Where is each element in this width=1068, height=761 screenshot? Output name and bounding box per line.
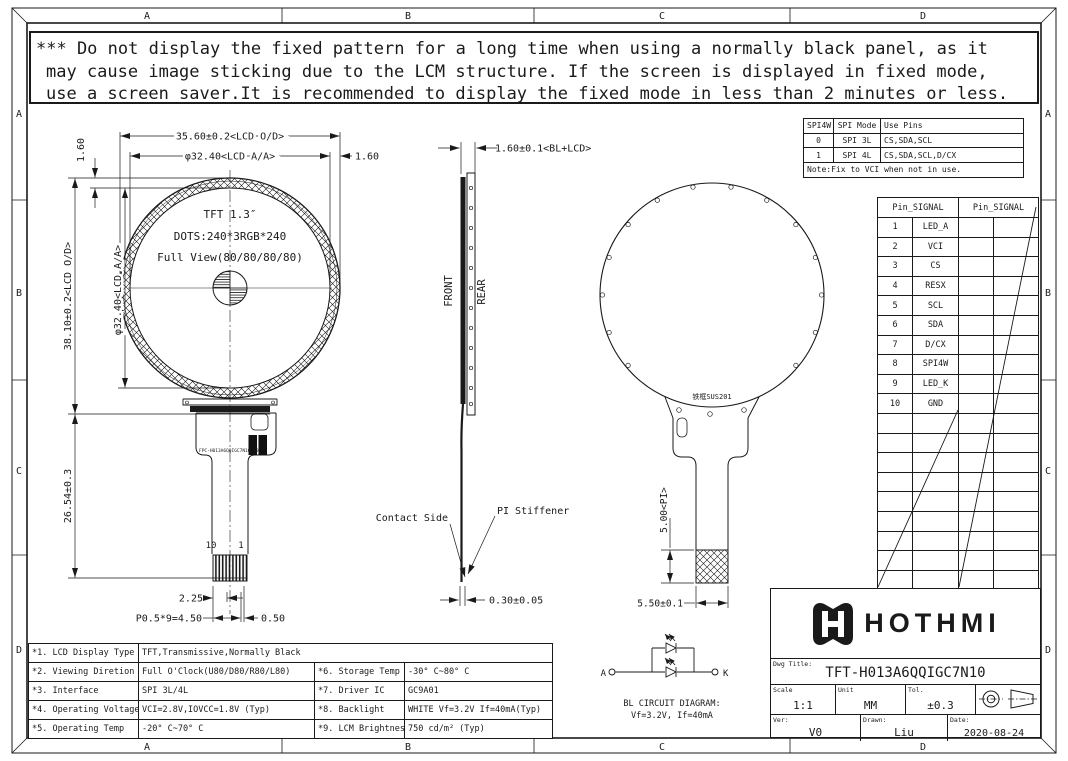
pin-no: 10 bbox=[878, 394, 913, 414]
table-row: Pin_SIGNAL Pin_SIGNAL bbox=[878, 198, 1039, 218]
pin-no: 1 bbox=[878, 218, 913, 238]
pin-signal: SPI4W bbox=[913, 355, 959, 375]
table-row: 8SPI4W bbox=[878, 355, 1039, 375]
pin-no: 3 bbox=[878, 257, 913, 277]
spec-label: *8. Backlight bbox=[315, 701, 405, 720]
spec-label: *6. Storage Temp bbox=[315, 663, 405, 682]
drawn-value: Liu bbox=[861, 726, 947, 739]
scale-unit-tol-row: Scale 1:1 Unit MM Tol. ±0.3 bbox=[771, 685, 1040, 715]
brand-name: HOTHMI bbox=[864, 608, 1000, 639]
pin-signal: LED_K bbox=[913, 374, 959, 394]
table-row: 6SDA bbox=[878, 315, 1039, 335]
pin-no: 4 bbox=[878, 276, 913, 296]
zone-top-d: D bbox=[920, 11, 926, 22]
spi-mode-table: SPI4W SPI Mode Use Pins 0 SPI 3L CS,SDA,… bbox=[803, 118, 1024, 178]
zone-right-a: A bbox=[1045, 109, 1051, 120]
drawn-cell: Drawn: Liu bbox=[861, 715, 948, 741]
spec-value: TFT,Transmissive,Normally Black bbox=[139, 644, 553, 663]
scale-label: Scale bbox=[773, 686, 793, 694]
title-block: HOTHMI Dwg Title: TFT-H013A6QQIGC7N10 Sc… bbox=[770, 588, 1041, 738]
unit-label: Unit bbox=[838, 686, 854, 694]
table-row: Note:Fix to VCI when not in use. bbox=[804, 163, 1024, 178]
table-row bbox=[878, 453, 1039, 473]
zone-left-b: B bbox=[16, 288, 22, 299]
table-row bbox=[878, 413, 1039, 433]
drawn-label: Drawn: bbox=[863, 716, 886, 724]
hothmi-logo-icon bbox=[810, 598, 856, 650]
scale-value: 1:1 bbox=[771, 699, 835, 712]
zone-right-c: C bbox=[1045, 466, 1051, 477]
spec-label: *9. LCM Brightness bbox=[315, 720, 405, 739]
pin-signal: SCL bbox=[913, 296, 959, 316]
unit-cell: Unit MM bbox=[836, 685, 906, 714]
pin-header-right: Pin_SIGNAL bbox=[959, 198, 1039, 218]
pin-signal: VCI bbox=[913, 237, 959, 257]
spi-cell: CS,SDA,SCL bbox=[881, 133, 1024, 148]
bl-circuit-title: BL CIRCUIT DIAGRAM: bbox=[623, 699, 720, 709]
scale-cell: Scale 1:1 bbox=[771, 685, 836, 714]
tol-cell: Tol. ±0.3 bbox=[906, 685, 976, 714]
table-row: 7D/CX bbox=[878, 335, 1039, 355]
date-label: Date: bbox=[950, 716, 970, 724]
warning-line-1: *** Do not display the fixed pattern for… bbox=[36, 39, 988, 59]
front-view-dim-text: 35.60±0.2<LCD O/D> φ32.40<LCD A/A> 1.60 … bbox=[63, 132, 379, 625]
dim-offset: 2.25 bbox=[179, 594, 203, 605]
zone-bottom-d: D bbox=[920, 742, 926, 753]
zone-top-b: B bbox=[405, 11, 411, 22]
table-row bbox=[878, 433, 1039, 453]
pin-no: 7 bbox=[878, 335, 913, 355]
table-row bbox=[878, 531, 1039, 551]
dim-pi: 5.00<PI> bbox=[659, 487, 670, 533]
table-row: *1. LCD Display Type TFT,Transmissive,No… bbox=[29, 644, 553, 663]
cathode-label: K bbox=[723, 669, 729, 679]
front-side-label: FRONT bbox=[443, 275, 455, 307]
rear-side-label: REAR bbox=[476, 279, 488, 305]
front-view bbox=[120, 170, 340, 614]
pin-no: 6 bbox=[878, 315, 913, 335]
bl-circuit-labels: A K BL CIRCUIT DIAGRAM: Vf=3.2V, If=40mA bbox=[601, 669, 729, 721]
spec-label: *5. Operating Temp bbox=[29, 720, 139, 739]
dim-fpc-length: 26.54±0.3 bbox=[63, 469, 74, 523]
pin-no: 8 bbox=[878, 355, 913, 375]
side-view bbox=[438, 142, 497, 606]
spec-value: -30° C~80° C bbox=[405, 663, 553, 682]
dim-aa-height: φ32.40<LCD A/A> bbox=[113, 245, 124, 335]
pin-label-10: 10 bbox=[206, 541, 217, 551]
pin-signal: D/CX bbox=[913, 335, 959, 355]
dim-od-height: 38.10±0.2<LCD O/D> bbox=[63, 242, 74, 350]
pin-signal: GND bbox=[913, 394, 959, 414]
lcd-size-label: TFT 1.3″ bbox=[204, 208, 257, 221]
spi-cell: CS,SDA,SCL,D/CX bbox=[881, 148, 1024, 163]
anode-label: A bbox=[601, 669, 607, 679]
pin-header-left: Pin_SIGNAL bbox=[878, 198, 959, 218]
unit-value: MM bbox=[836, 699, 905, 712]
zone-top-a: A bbox=[144, 11, 150, 22]
table-row: *5. Operating Temp -20° C~70° C *9. LCM … bbox=[29, 720, 553, 739]
version-value: V0 bbox=[771, 726, 860, 739]
table-row: 1 SPI 4L CS,SDA,SCL,D/CX bbox=[804, 148, 1024, 163]
table-row: 4RESX bbox=[878, 276, 1039, 296]
spec-label: *7. Driver IC bbox=[315, 682, 405, 701]
dim-margin-top: 1.60 bbox=[76, 138, 87, 162]
table-row: 1LED_A bbox=[878, 218, 1039, 238]
date-cell: Date: 2020-08-24 bbox=[948, 715, 1040, 741]
spec-value: -20° C~70° C bbox=[139, 720, 315, 739]
table-row: 5SCL bbox=[878, 296, 1039, 316]
fpc-code-label: FPC-H013A6QQIGC7N10_V0 bbox=[199, 448, 259, 454]
table-row bbox=[878, 492, 1039, 512]
date-value: 2020-08-24 bbox=[948, 728, 1040, 739]
bl-circuit-spec: Vf=3.2V, If=40mA bbox=[631, 711, 713, 721]
front-view-dimensions bbox=[68, 132, 352, 622]
dim-pitch: P0.5*9=4.50 bbox=[136, 614, 202, 625]
spec-value: VCI=2.8V,IOVCC=1.8V (Typ) bbox=[139, 701, 315, 720]
spec-value: 750 cd/m² (Typ) bbox=[405, 720, 553, 739]
spec-value: SPI 3L/4L bbox=[139, 682, 315, 701]
table-row bbox=[878, 472, 1039, 492]
spi-header-spi4w: SPI4W bbox=[804, 119, 834, 134]
zone-left-a: A bbox=[16, 109, 22, 120]
drawing-sheet: A B C D A B C D A B C D A B C D *** Do n… bbox=[0, 0, 1068, 761]
pin-signal: SDA bbox=[913, 315, 959, 335]
pin-signal-table: Pin_SIGNAL Pin_SIGNAL 1LED_A 2VCI 3CS 4R… bbox=[877, 197, 1039, 590]
led-icon bbox=[665, 658, 676, 677]
version-label: Ver: bbox=[773, 716, 789, 724]
pin-no: 2 bbox=[878, 237, 913, 257]
spi-header-mode: SPI Mode bbox=[834, 119, 881, 134]
tol-label: Tol. bbox=[908, 686, 924, 694]
table-row: 9LED_K bbox=[878, 374, 1039, 394]
dim-margin-bottom: 0.50 bbox=[261, 614, 285, 625]
spec-value: GC9A01 bbox=[405, 682, 553, 701]
brand-logo: HOTHMI bbox=[771, 589, 1040, 659]
zone-top-c: C bbox=[659, 11, 665, 22]
projection-symbol-icon bbox=[976, 685, 1040, 713]
spec-label: *4. Operating Voltage bbox=[29, 701, 139, 720]
spi-cell: SPI 3L bbox=[834, 133, 881, 148]
spec-value: Full O'Clock(U80/D80/R80/L80) bbox=[139, 663, 315, 682]
zone-right-d: D bbox=[1045, 645, 1051, 656]
drawing-title-row: Dwg Title: TFT-H013A6QQIGC7N10 bbox=[771, 659, 1040, 685]
spec-label: *2. Viewing Diretion bbox=[29, 663, 139, 682]
dim-thickness: 1.60±0.1<BL+LCD> bbox=[495, 144, 591, 155]
table-row: *3. Interface SPI 3L/4L *7. Driver IC GC… bbox=[29, 682, 553, 701]
pin-no: 5 bbox=[878, 296, 913, 316]
warning-line-3: use a screen saver.It is recommended to … bbox=[46, 84, 1008, 104]
front-view-labels: TFT 1.3″ DOTS:240*3RGB*240 Full View(80/… bbox=[157, 208, 303, 454]
zone-right-b: B bbox=[1045, 288, 1051, 299]
frame-material-label: 铁框SUS201 bbox=[692, 392, 731, 401]
pin-signal: RESX bbox=[913, 276, 959, 296]
spec-label: *1. LCD Display Type bbox=[29, 644, 139, 663]
table-row: *2. Viewing Diretion Full O'Clock(U80/D8… bbox=[29, 663, 553, 682]
zone-left-c: C bbox=[16, 466, 22, 477]
dwg-title-value: TFT-H013A6QQIGC7N10 bbox=[771, 665, 1040, 681]
table-row: 0 SPI 3L CS,SDA,SCL bbox=[804, 133, 1024, 148]
table-row: 2VCI bbox=[878, 237, 1039, 257]
led-icon bbox=[665, 634, 676, 653]
bl-circuit bbox=[609, 634, 718, 677]
pin-no: 9 bbox=[878, 374, 913, 394]
pi-stiffener-label: PI Stiffener bbox=[497, 506, 569, 517]
table-row bbox=[878, 551, 1039, 571]
pin-signal: CS bbox=[913, 257, 959, 277]
version-cell: Ver: V0 bbox=[771, 715, 861, 741]
spi-note: Note:Fix to VCI when not in use. bbox=[804, 163, 1024, 178]
dim-tail-width: 5.50±0.1 bbox=[637, 599, 683, 610]
spec-table: *1. LCD Display Type TFT,Transmissive,No… bbox=[28, 643, 553, 739]
dim-aa-width: φ32.40<LCD A/A> bbox=[185, 152, 275, 163]
spi-cell: SPI 4L bbox=[834, 148, 881, 163]
zone-bottom-b: B bbox=[405, 742, 411, 753]
spi-cell: 0 bbox=[804, 133, 834, 148]
pin-label-1: 1 bbox=[238, 541, 243, 551]
dim-fpc-thickness: 0.30±0.05 bbox=[489, 596, 543, 607]
table-row: 10GND bbox=[878, 394, 1039, 414]
table-row bbox=[878, 570, 1039, 590]
tol-value: ±0.3 bbox=[906, 699, 975, 712]
table-row: 3CS bbox=[878, 257, 1039, 277]
zone-left-d: D bbox=[16, 645, 22, 656]
zone-bottom-a: A bbox=[144, 742, 150, 753]
spi-header-pins: Use Pins bbox=[881, 119, 1024, 134]
ver-drawn-date-row: Ver: V0 Drawn: Liu Date: 2020-08-24 bbox=[771, 715, 1040, 741]
side-view-labels: 1.60±0.1<BL+LCD> FRONT REAR Contact Side… bbox=[376, 144, 592, 607]
dim-margin-right: 1.60 bbox=[355, 152, 379, 163]
spec-value: WHITE Vf=3.2V If=40mA(Typ) bbox=[405, 701, 553, 720]
table-row: *4. Operating Voltage VCI=2.8V,IOVCC=1.8… bbox=[29, 701, 553, 720]
dim-od-width: 35.60±0.2<LCD O/D> bbox=[176, 132, 284, 143]
rear-view bbox=[600, 183, 824, 608]
table-row bbox=[878, 511, 1039, 531]
projection-cell bbox=[976, 685, 1040, 714]
lcd-dots-label: DOTS:240*3RGB*240 bbox=[174, 230, 287, 243]
lcd-view-label: Full View(80/80/80/80) bbox=[157, 251, 303, 264]
spec-label: *3. Interface bbox=[29, 682, 139, 701]
warning-note: *** Do not display the fixed pattern for… bbox=[30, 32, 1038, 104]
warning-line-2: may cause image sticking due to the LCM … bbox=[46, 62, 988, 82]
contact-side-label: Contact Side bbox=[376, 513, 448, 524]
spi-cell: 1 bbox=[804, 148, 834, 163]
pin-signal: LED_A bbox=[913, 218, 959, 238]
zone-bottom-c: C bbox=[659, 742, 665, 753]
table-row: SPI4W SPI Mode Use Pins bbox=[804, 119, 1024, 134]
rear-view-labels: 铁框SUS201 5.00<PI> 5.50±0.1 bbox=[637, 392, 731, 610]
